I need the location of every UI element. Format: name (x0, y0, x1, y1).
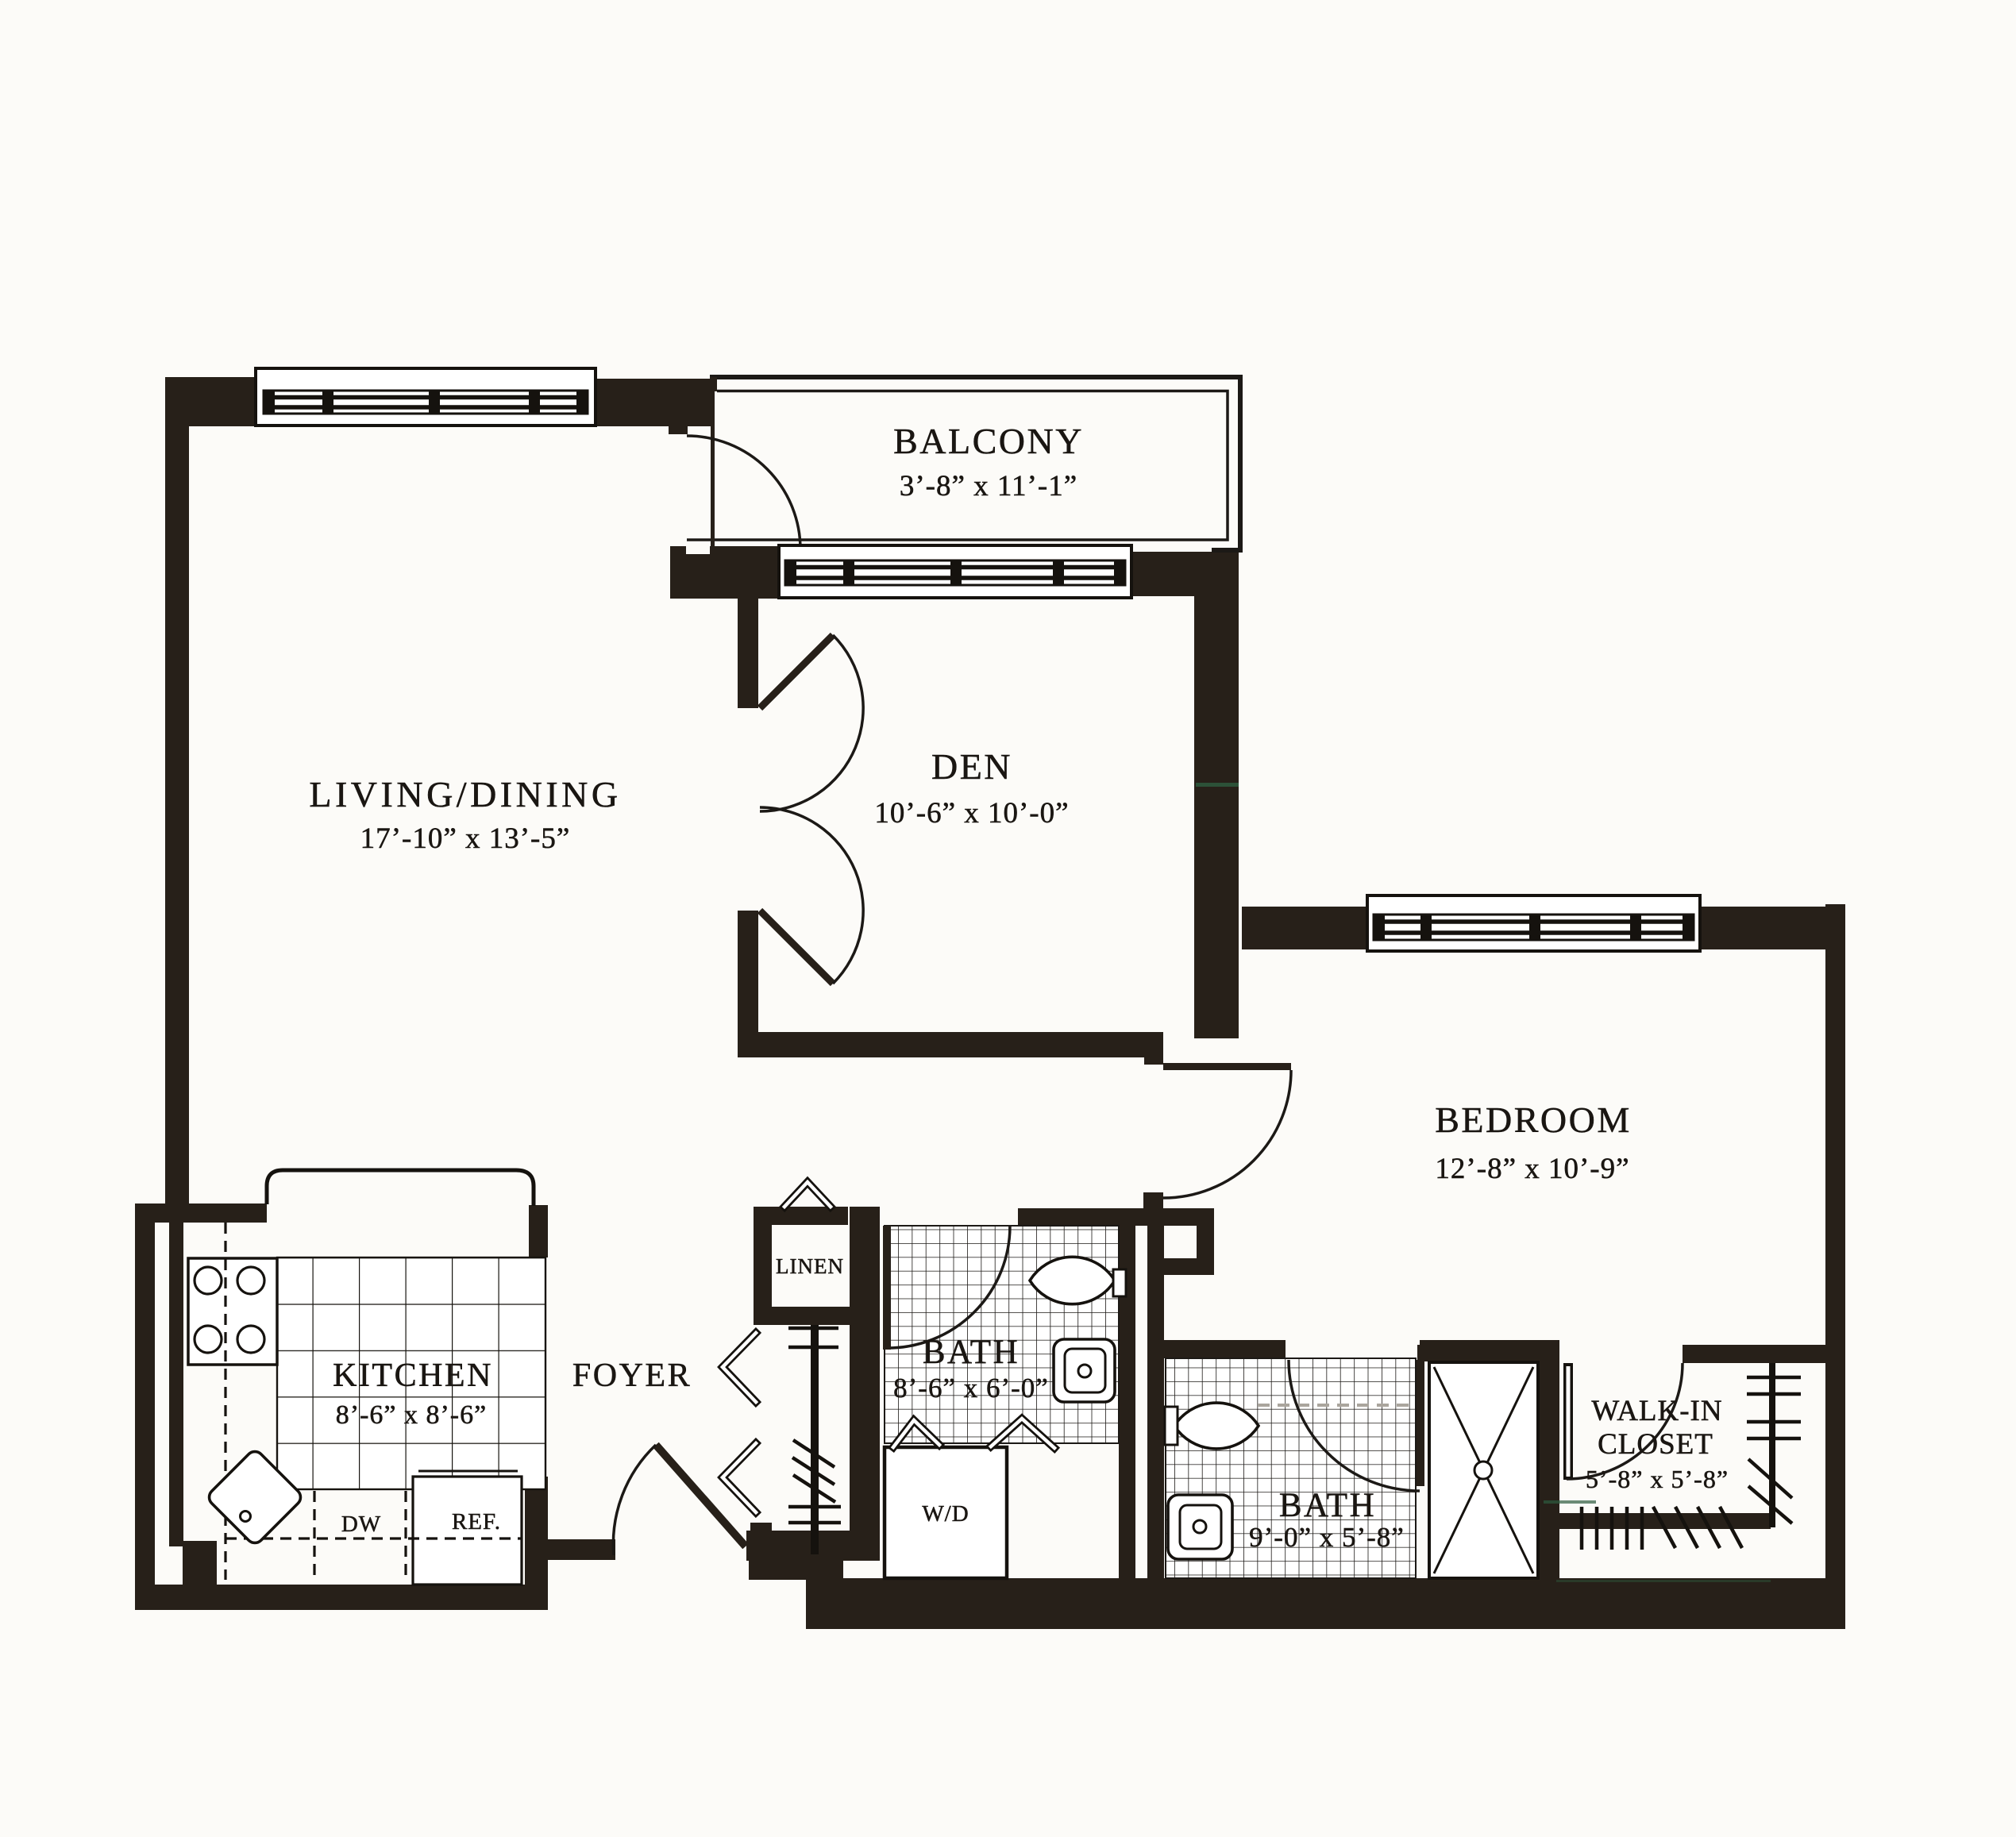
svg-text:5’-8” x 5’-8”: 5’-8” x 5’-8” (1586, 1465, 1729, 1493)
svg-text:BEDROOM: BEDROOM (1435, 1100, 1632, 1140)
svg-text:DW: DW (341, 1512, 381, 1537)
svg-text:CLOSET: CLOSET (1598, 1428, 1713, 1461)
svg-text:W/D: W/D (922, 1501, 969, 1527)
svg-text:REF.: REF. (452, 1509, 501, 1535)
svg-text:BATH: BATH (1279, 1487, 1376, 1524)
svg-text:BATH: BATH (923, 1334, 1020, 1371)
svg-text:12’-8” x 10’-9”: 12’-8” x 10’-9” (1435, 1153, 1629, 1185)
svg-text:DEN: DEN (931, 746, 1012, 787)
svg-text:BALCONY: BALCONY (893, 421, 1084, 461)
svg-text:LIVING/DINING: LIVING/DINING (309, 774, 621, 815)
svg-text:10’-6” x 10’-0”: 10’-6” x 10’-0” (874, 797, 1069, 830)
svg-text:KITCHEN: KITCHEN (333, 1358, 493, 1394)
svg-text:17’-10” x 13’-5”: 17’-10” x 13’-5” (360, 822, 571, 855)
svg-text:8’-6” x 8’-6”: 8’-6” x 8’-6” (336, 1400, 487, 1430)
svg-text:3’-8” x 11’-1”: 3’-8” x 11’-1” (900, 470, 1077, 503)
svg-text:8’-6” x 6’-0”: 8’-6” x 6’-0” (893, 1373, 1049, 1404)
svg-text:WALK-IN: WALK-IN (1591, 1395, 1722, 1427)
svg-text:9’-0” x 5’-8”: 9’-0” x 5’-8” (1249, 1522, 1405, 1553)
svg-text:FOYER: FOYER (572, 1358, 692, 1394)
svg-text:LINEN: LINEN (776, 1254, 844, 1278)
